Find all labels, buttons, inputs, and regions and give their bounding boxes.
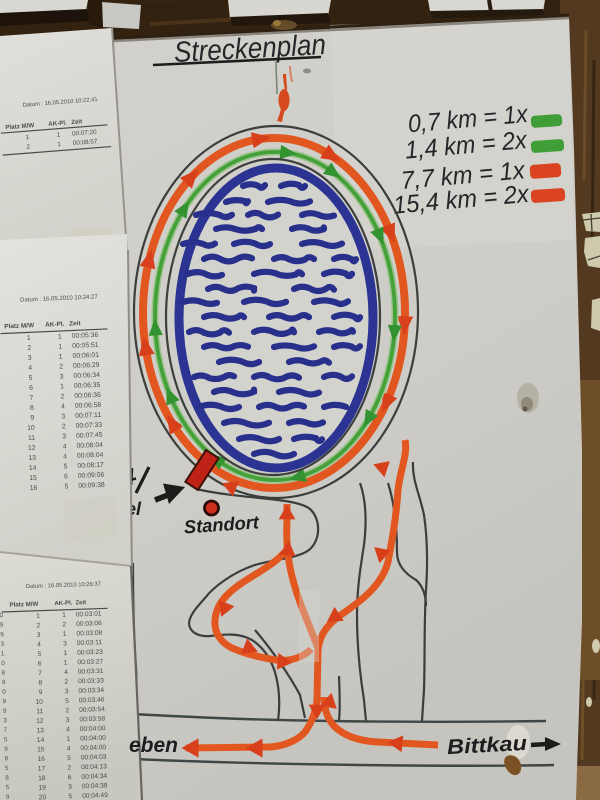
svg-text:00:03:11: 00:03:11 <box>77 639 103 647</box>
svg-text:3: 3 <box>28 355 32 362</box>
svg-text:00:06:35: 00:06:35 <box>74 382 101 390</box>
svg-text:2: 2 <box>62 423 66 430</box>
svg-text:1: 1 <box>36 613 40 620</box>
svg-text:eben: eben <box>129 734 178 757</box>
svg-text:7: 7 <box>29 395 33 402</box>
svg-text:00:03:46: 00:03:46 <box>79 696 105 704</box>
svg-text:5: 5 <box>37 651 41 658</box>
svg-text:5: 5 <box>67 755 71 762</box>
svg-text:3: 3 <box>65 688 69 695</box>
svg-text:7: 7 <box>38 670 42 677</box>
svg-text:AK-Pl.: AK-Pl. <box>48 119 67 127</box>
svg-text:1: 1 <box>58 343 62 350</box>
svg-text:6: 6 <box>38 660 42 667</box>
svg-text:4: 4 <box>64 669 68 676</box>
svg-text:1: 1 <box>62 612 66 619</box>
svg-text:4: 4 <box>28 365 32 372</box>
svg-text:2: 2 <box>62 621 66 628</box>
svg-text:00:04:00: 00:04:00 <box>80 725 106 733</box>
svg-text:3: 3 <box>63 640 67 647</box>
svg-text:15: 15 <box>29 475 37 482</box>
svg-text:4: 4 <box>63 443 67 450</box>
svg-text:00:07:45: 00:07:45 <box>76 432 103 440</box>
svg-text:00:04:38: 00:04:38 <box>82 782 108 790</box>
svg-text:3: 3 <box>60 373 64 380</box>
svg-text:Platz M/W: Platz M/W <box>4 322 35 330</box>
svg-text:AK-Pl.: AK-Pl. <box>45 321 65 329</box>
svg-text:00:08:04: 00:08:04 <box>76 442 103 450</box>
svg-text:20: 20 <box>39 794 47 800</box>
svg-text:17: 17 <box>38 765 46 772</box>
svg-text:00:07:11: 00:07:11 <box>75 412 101 420</box>
svg-text:9: 9 <box>39 689 43 696</box>
svg-text:14: 14 <box>29 465 37 472</box>
svg-text:2: 2 <box>59 363 63 370</box>
svg-text:1: 1 <box>63 631 67 638</box>
svg-text:4: 4 <box>63 453 67 460</box>
svg-text:1: 1 <box>59 353 63 360</box>
svg-text:3: 3 <box>37 632 41 639</box>
svg-text:19: 19 <box>38 784 46 791</box>
svg-text:3: 3 <box>62 433 66 440</box>
svg-text:11: 11 <box>36 708 43 715</box>
svg-text:5: 5 <box>29 375 33 382</box>
svg-text:Zeit: Zeit <box>71 118 83 126</box>
svg-text:12: 12 <box>36 718 44 725</box>
svg-text:1: 1 <box>64 660 68 667</box>
svg-text:00:03:33: 00:03:33 <box>78 677 104 685</box>
svg-text:00:04:00: 00:04:00 <box>80 744 106 752</box>
svg-text:00:03:58: 00:03:58 <box>79 715 105 723</box>
svg-text:3: 3 <box>68 784 72 791</box>
svg-text:10: 10 <box>27 425 35 432</box>
svg-text:00:05:51: 00:05:51 <box>72 342 99 350</box>
svg-text:2: 2 <box>27 345 31 352</box>
svg-text:00:04:13: 00:04:13 <box>81 763 107 771</box>
svg-text:15: 15 <box>37 746 45 753</box>
svg-text:11: 11 <box>28 435 36 442</box>
svg-text:4: 4 <box>67 745 71 752</box>
svg-text:00:04:49: 00:04:49 <box>82 792 108 800</box>
svg-text:00:03:06: 00:03:06 <box>76 620 102 628</box>
svg-text:2: 2 <box>65 707 69 714</box>
svg-text:6: 6 <box>29 385 33 392</box>
svg-text:4: 4 <box>37 641 41 648</box>
svg-text:13: 13 <box>36 727 44 734</box>
svg-text:Zeit: Zeit <box>69 320 82 328</box>
svg-text:Bittkau: Bittkau <box>446 732 527 759</box>
svg-text:00:03:34: 00:03:34 <box>78 687 104 695</box>
svg-text:2: 2 <box>64 679 68 686</box>
svg-text:00:08:04: 00:08:04 <box>77 452 104 460</box>
svg-text:00:08:17: 00:08:17 <box>77 462 104 470</box>
svg-text:1: 1 <box>60 383 64 390</box>
svg-text:Platz M/W: Platz M/W <box>9 601 38 609</box>
svg-text:00:03:01: 00:03:01 <box>76 611 102 619</box>
svg-text:00:04:00: 00:04:00 <box>80 735 106 743</box>
svg-text:1: 1 <box>58 333 62 340</box>
svg-text:5: 5 <box>63 463 67 470</box>
svg-text:2: 2 <box>60 393 64 400</box>
svg-text:00:06:01: 00:06:01 <box>72 352 99 360</box>
svg-text:16: 16 <box>30 485 38 492</box>
svg-text:10: 10 <box>35 699 43 706</box>
svg-text:8: 8 <box>38 680 42 687</box>
svg-text:00:05:36: 00:05:36 <box>72 332 99 340</box>
svg-text:00:04:34: 00:04:34 <box>81 773 107 781</box>
svg-text:3: 3 <box>61 413 65 420</box>
svg-text:00:06:58: 00:06:58 <box>75 402 102 410</box>
svg-text:2: 2 <box>36 622 40 629</box>
svg-text:5: 5 <box>68 793 72 800</box>
svg-text:1: 1 <box>63 650 67 657</box>
svg-text:Zeit: Zeit <box>75 600 86 606</box>
svg-text:16: 16 <box>37 756 45 763</box>
svg-text:18: 18 <box>38 775 46 782</box>
svg-text:5: 5 <box>64 483 68 490</box>
svg-text:00:06:36: 00:06:36 <box>74 392 101 400</box>
svg-text:5: 5 <box>65 698 69 705</box>
svg-text:00:06:29: 00:06:29 <box>73 362 100 370</box>
svg-text:00:04:03: 00:04:03 <box>81 754 107 762</box>
svg-text:1: 1 <box>66 736 70 743</box>
svg-text:13: 13 <box>28 455 36 462</box>
svg-text:00:07:33: 00:07:33 <box>76 422 103 430</box>
svg-text:4: 4 <box>61 403 65 410</box>
svg-text:6: 6 <box>64 473 68 480</box>
svg-text:00:09:38: 00:09:38 <box>78 482 105 490</box>
svg-text:1: 1 <box>27 335 31 342</box>
svg-text:4: 4 <box>66 726 70 733</box>
svg-text:12: 12 <box>28 445 36 452</box>
svg-text:00:03:23: 00:03:23 <box>77 649 103 657</box>
svg-text:3: 3 <box>66 717 70 724</box>
svg-text:9: 9 <box>30 415 34 422</box>
svg-text:00:03:54: 00:03:54 <box>79 706 105 714</box>
svg-text:8: 8 <box>30 405 34 412</box>
svg-text:00:06:34: 00:06:34 <box>73 372 100 380</box>
svg-text:14: 14 <box>37 737 45 744</box>
svg-text:00:03:08: 00:03:08 <box>76 630 102 638</box>
svg-text:00:03:27: 00:03:27 <box>77 658 103 666</box>
svg-text:6: 6 <box>68 774 72 781</box>
svg-text:AK-Pl.: AK-Pl. <box>54 601 73 608</box>
svg-text:00:09:06: 00:09:06 <box>78 472 105 480</box>
svg-text:2: 2 <box>67 764 71 771</box>
svg-text:00:03:31: 00:03:31 <box>78 668 104 676</box>
